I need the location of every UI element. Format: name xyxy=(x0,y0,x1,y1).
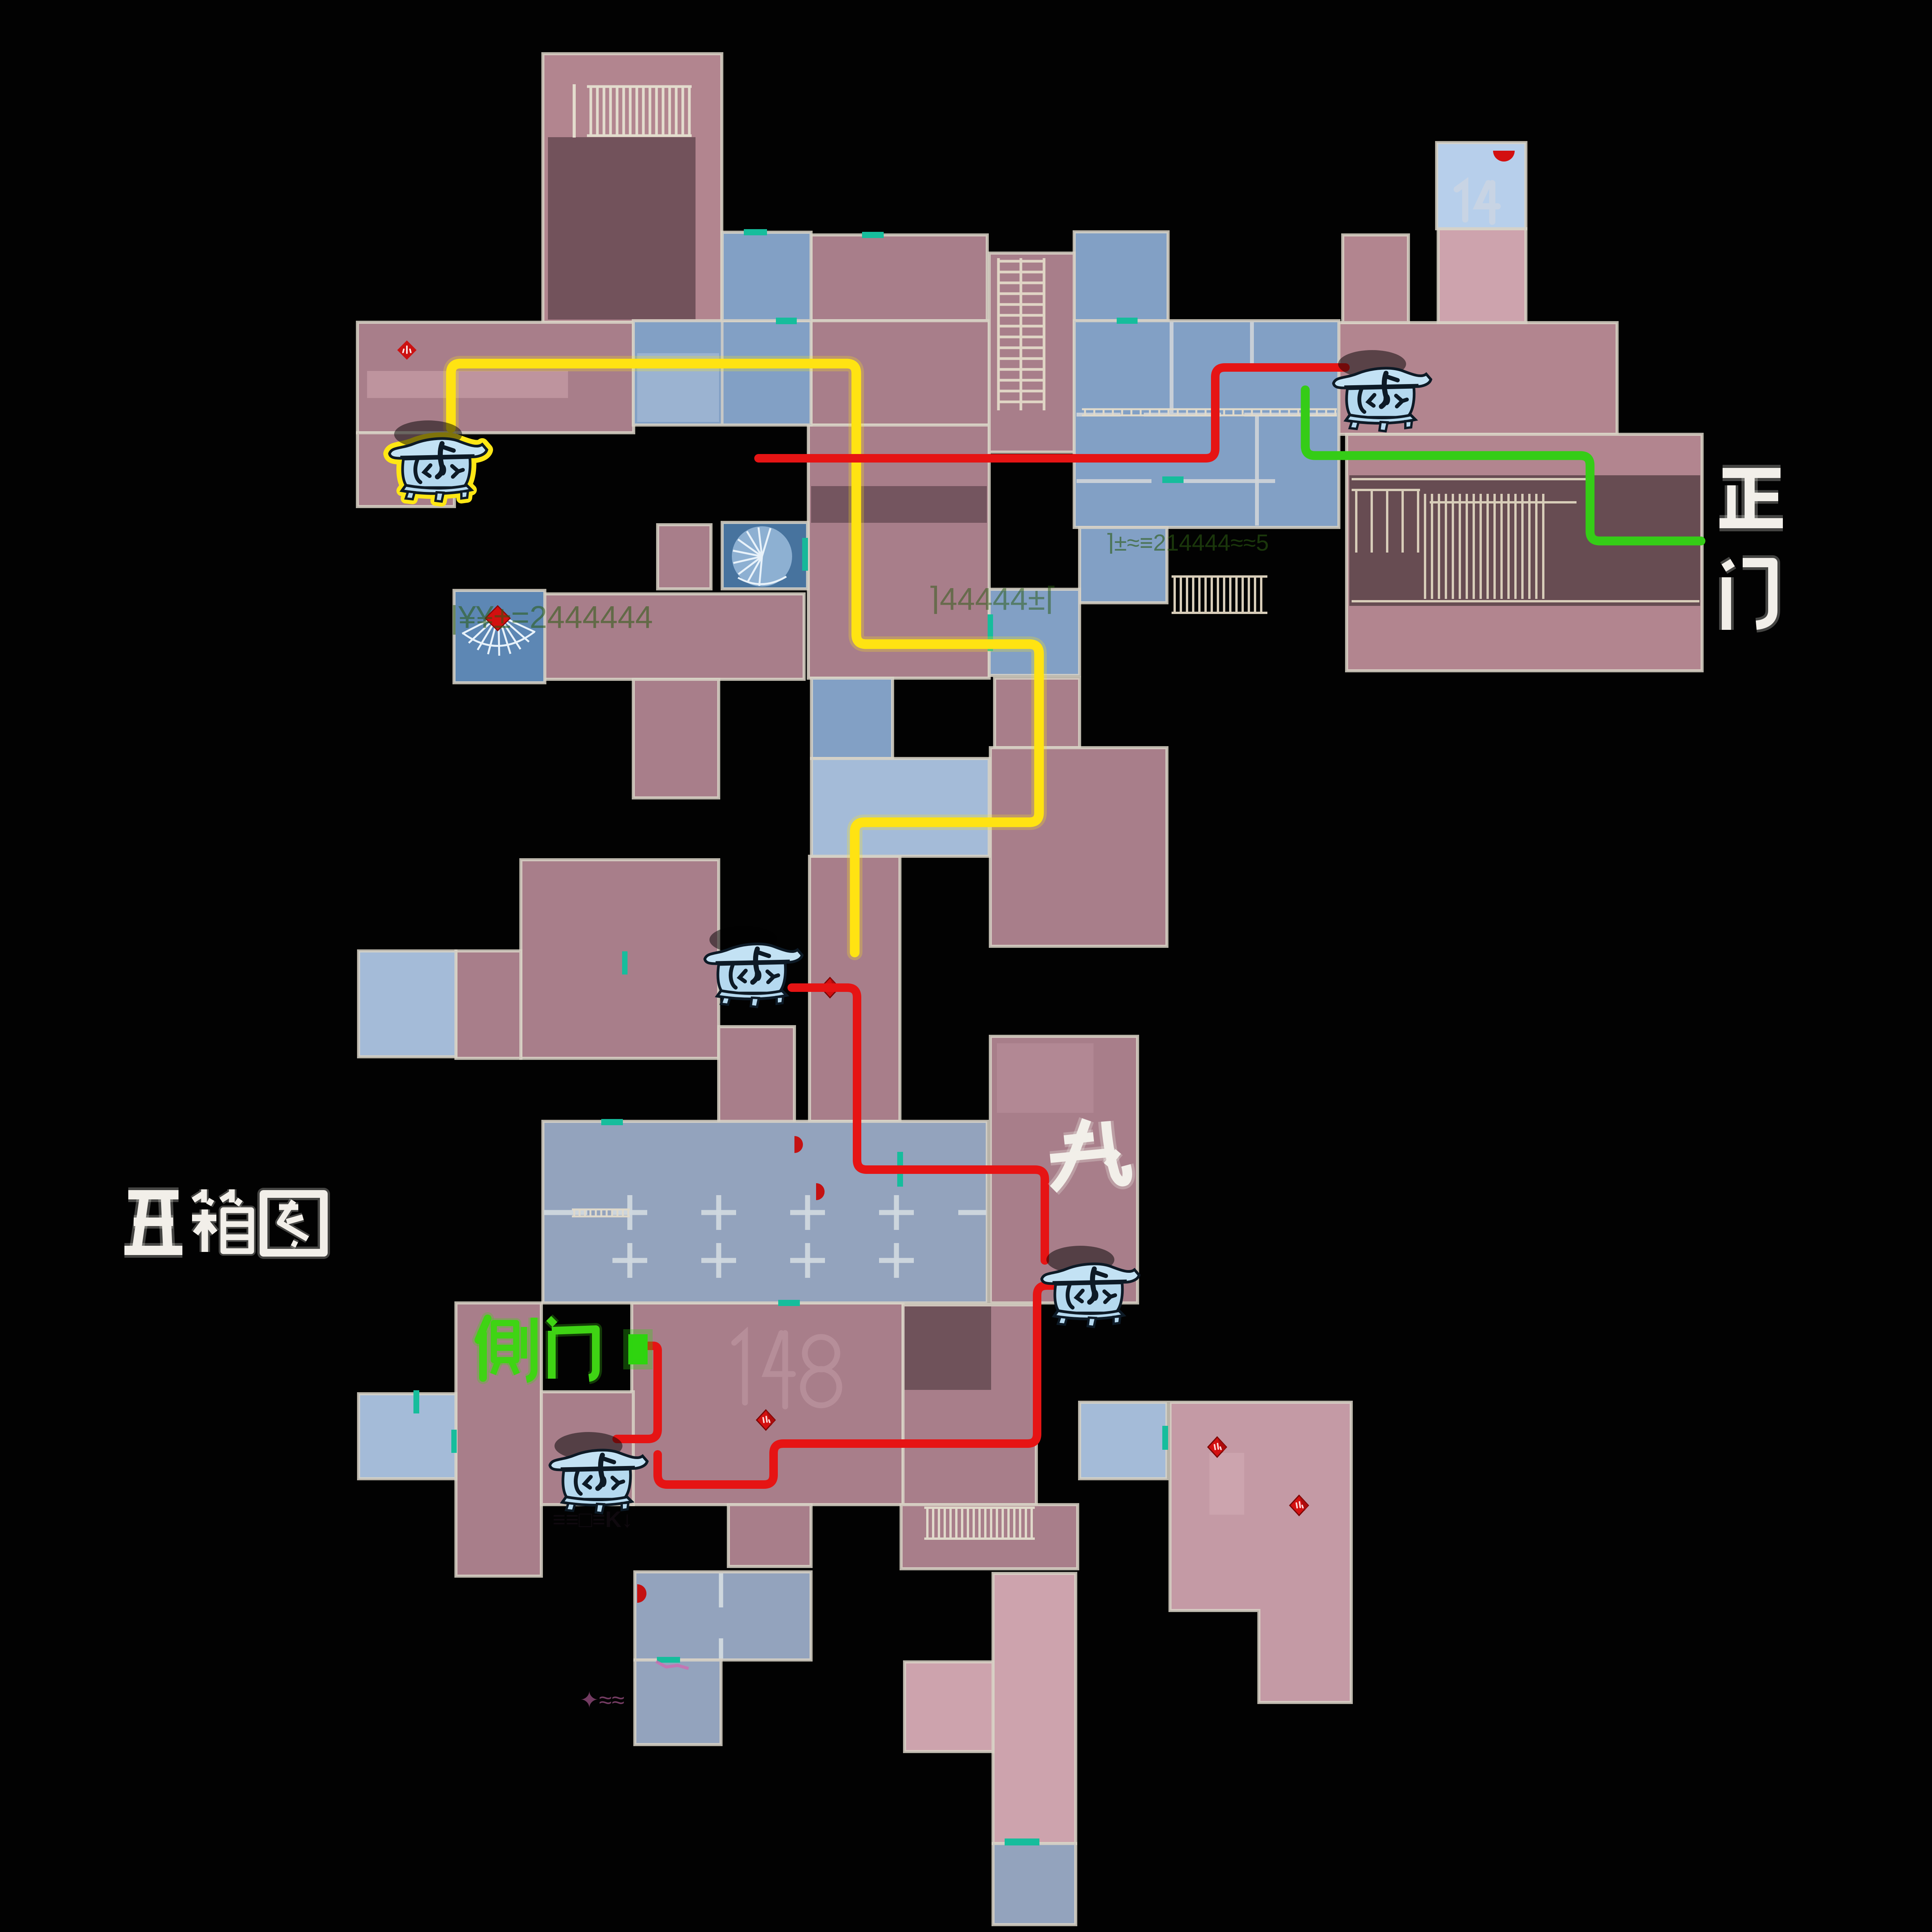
svg-text:✦≈≈: ✦≈≈ xyxy=(580,1687,624,1713)
svg-text:⌉44444±⌈: ⌉44444±⌈ xyxy=(927,582,1058,617)
svg-text:|¥¥±=2444444: |¥¥±=2444444 xyxy=(450,600,653,635)
svg-text:⌉±≈≡214444≈≈5: ⌉±≈≡214444≈≈5 xyxy=(1105,530,1269,556)
